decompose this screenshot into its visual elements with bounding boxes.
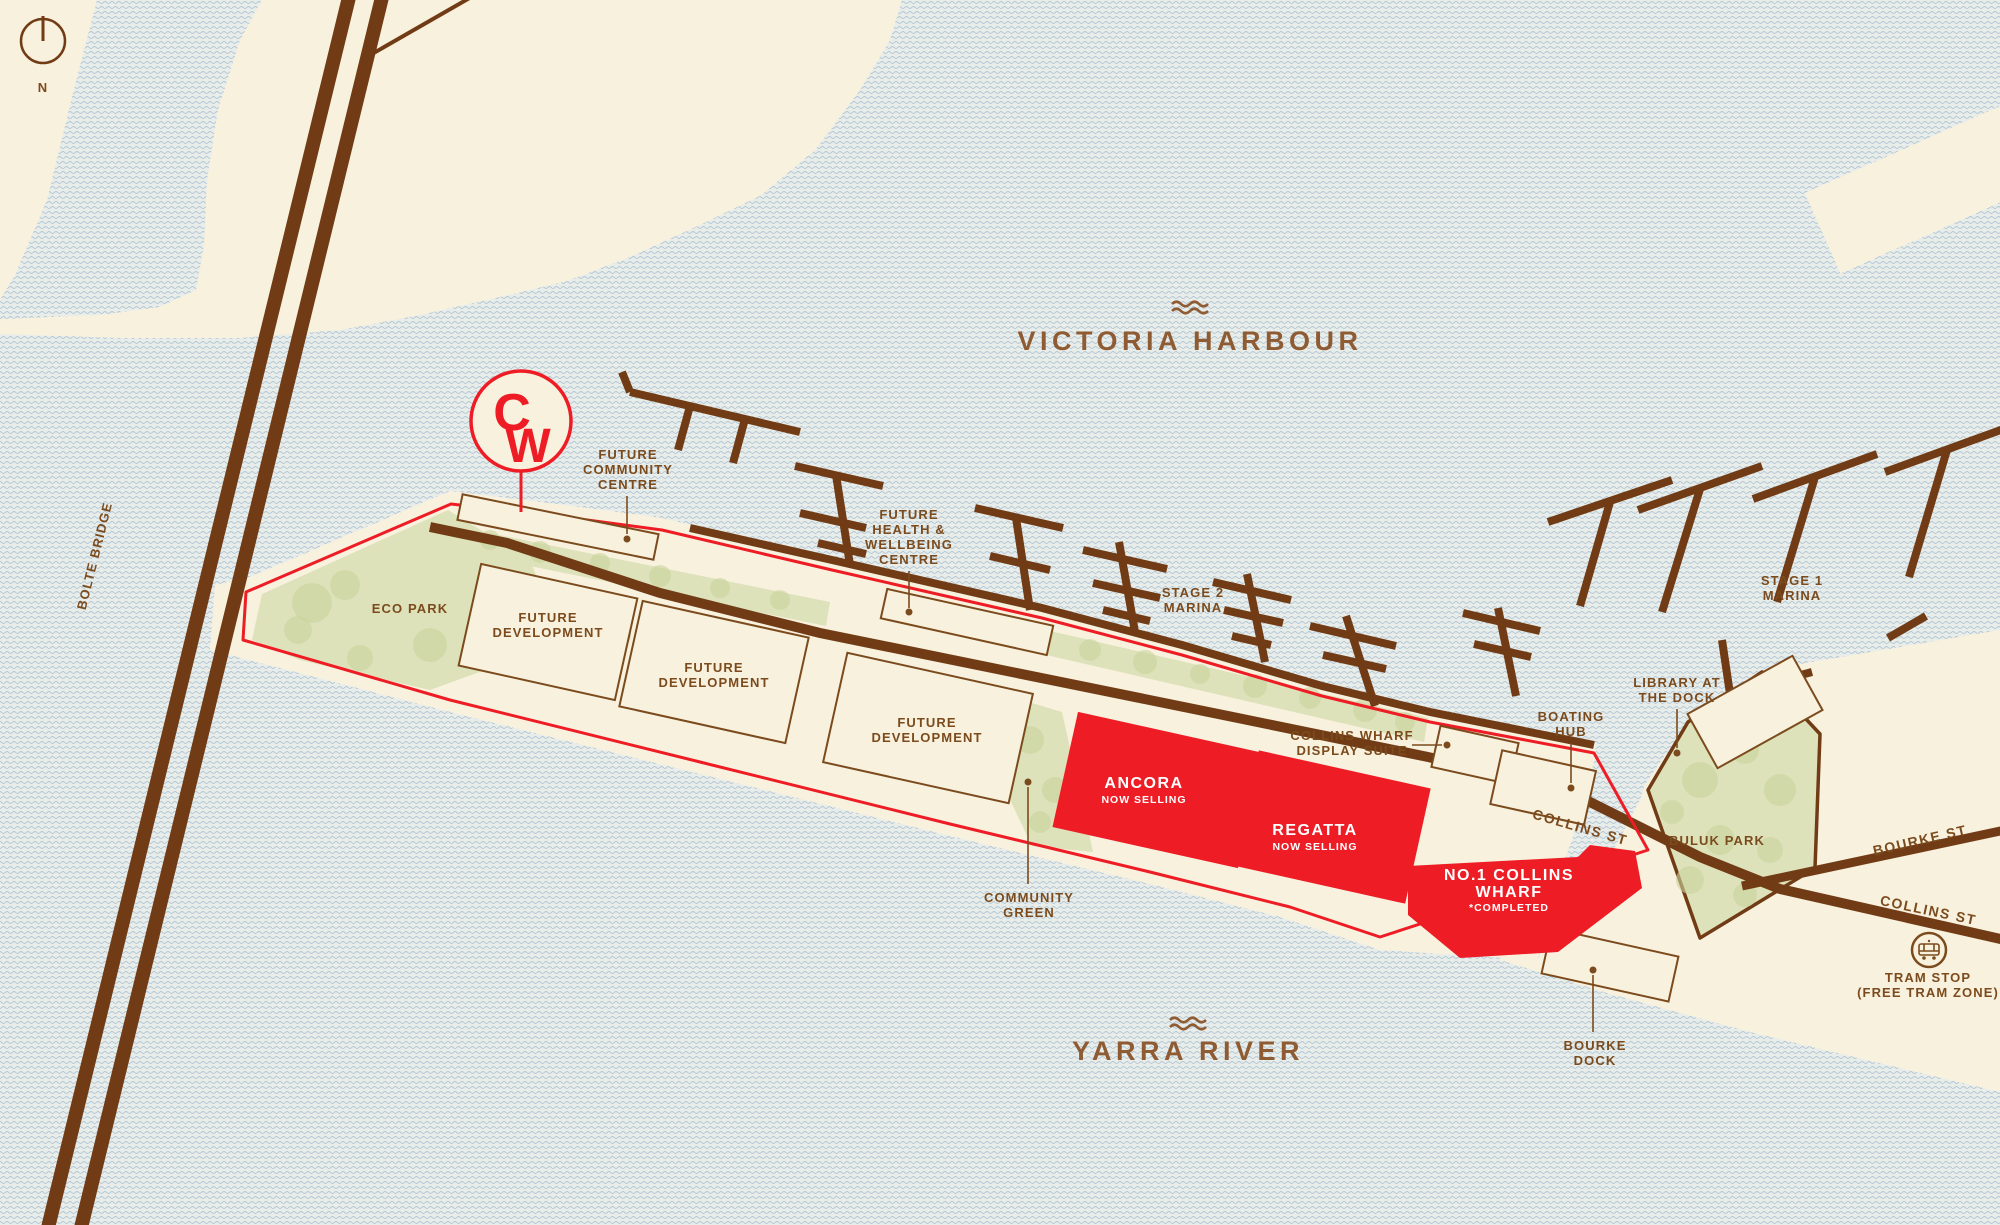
svg-text:DEVELOPMENT: DEVELOPMENT [492, 625, 603, 640]
ancora-label: ANCORA NOW SELLING [1101, 775, 1186, 806]
svg-text:COMMUNITY: COMMUNITY [984, 890, 1074, 905]
svg-text:GREEN: GREEN [1003, 905, 1055, 920]
svg-text:NO.1 COLLINS: NO.1 COLLINS [1444, 867, 1574, 884]
svg-text:STAGE 2: STAGE 2 [1162, 585, 1224, 600]
buluk-park-label: BULUK PARK [1669, 833, 1765, 848]
svg-text:FUTURE: FUTURE [879, 507, 938, 522]
svg-text:REGATTA: REGATTA [1272, 822, 1357, 839]
svg-text:BOATING: BOATING [1538, 709, 1605, 724]
stage1-marina-label: STAGE 1 MARINA [1761, 573, 1823, 603]
eco-park-label: ECO PARK [372, 601, 448, 616]
svg-text:DEVELOPMENT: DEVELOPMENT [658, 675, 769, 690]
svg-text:NOW SELLING: NOW SELLING [1272, 841, 1357, 853]
svg-text:HEALTH &: HEALTH & [872, 522, 946, 537]
svg-text:*COMPLETED: *COMPLETED [1469, 902, 1549, 914]
svg-text:THE DOCK: THE DOCK [1639, 690, 1716, 705]
svg-text:MARINA: MARINA [1763, 588, 1822, 603]
collins-wharf-map: BOLTE BRIDGE [0, 0, 2000, 1225]
compass-n-label: N [38, 80, 49, 95]
victoria-harbour-label: VICTORIA HARBOUR [1017, 326, 1362, 356]
svg-text:DEVELOPMENT: DEVELOPMENT [871, 730, 982, 745]
svg-text:FUTURE: FUTURE [684, 660, 743, 675]
svg-text:NOW SELLING: NOW SELLING [1101, 794, 1186, 806]
svg-text:FUTURE: FUTURE [897, 715, 956, 730]
svg-text:FUTURE: FUTURE [518, 610, 577, 625]
svg-text:(FREE TRAM ZONE): (FREE TRAM ZONE) [1857, 985, 1999, 1000]
svg-text:CENTRE: CENTRE [879, 552, 939, 567]
svg-text:FUTURE: FUTURE [598, 447, 657, 462]
svg-text:BOURKE: BOURKE [1564, 1038, 1627, 1053]
svg-text:DOCK: DOCK [1574, 1053, 1617, 1068]
svg-text:DISPLAY SUITE: DISPLAY SUITE [1296, 743, 1407, 758]
svg-text:TRAM STOP: TRAM STOP [1885, 970, 1971, 985]
svg-text:HUB: HUB [1555, 724, 1586, 739]
svg-text:ANCORA: ANCORA [1104, 775, 1183, 792]
svg-text:WHARF: WHARF [1475, 884, 1542, 901]
logo-letter-w: W [505, 420, 551, 473]
svg-text:STAGE 1: STAGE 1 [1761, 573, 1823, 588]
regatta-label: REGATTA NOW SELLING [1272, 822, 1357, 853]
svg-text:CENTRE: CENTRE [598, 477, 658, 492]
yarra-river-label: YARRA RIVER [1072, 1036, 1304, 1066]
svg-text:COMMUNITY: COMMUNITY [583, 462, 673, 477]
stage2-marina-label: STAGE 2 MARINA [1162, 585, 1224, 615]
svg-text:MARINA: MARINA [1164, 600, 1223, 615]
svg-text:WELLBEING: WELLBEING [865, 537, 953, 552]
svg-text:COLLINS WHARF: COLLINS WHARF [1290, 728, 1413, 743]
svg-text:LIBRARY AT: LIBRARY AT [1633, 675, 1721, 690]
